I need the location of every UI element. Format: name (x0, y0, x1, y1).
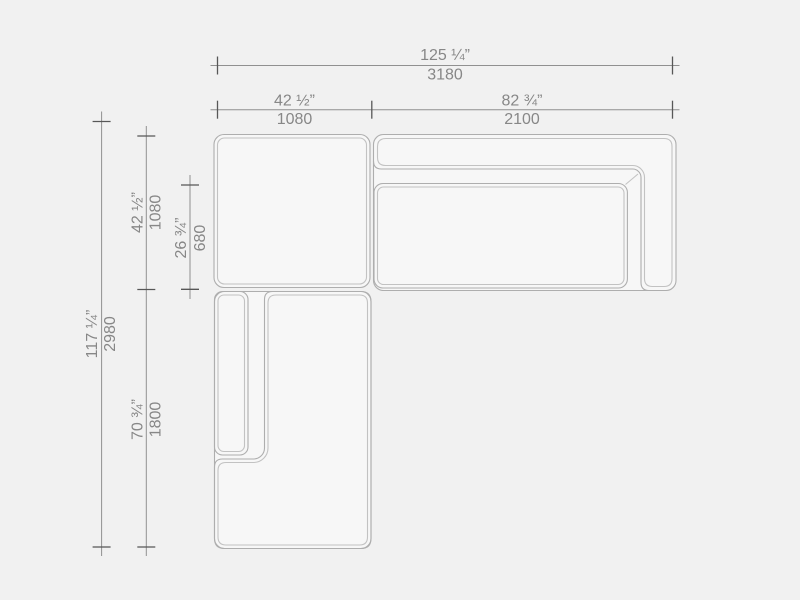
svg-text:2100: 2100 (504, 111, 540, 128)
svg-text:42 ½”: 42 ½” (130, 192, 147, 233)
svg-text:680: 680 (192, 225, 209, 252)
svg-text:125 ¼”: 125 ¼” (420, 47, 470, 64)
svg-text:117 ¼”: 117 ¼” (84, 310, 101, 359)
svg-text:1080: 1080 (147, 195, 164, 231)
svg-text:3180: 3180 (427, 67, 463, 84)
svg-text:82 ¾”: 82 ¾” (502, 93, 543, 110)
svg-text:1800: 1800 (147, 402, 164, 438)
svg-text:26 ¾”: 26 ¾” (173, 218, 190, 259)
svg-text:2980: 2980 (102, 316, 119, 352)
svg-text:70 ¾”: 70 ¾” (130, 399, 147, 440)
svg-text:1080: 1080 (277, 111, 313, 128)
svg-text:42 ½”: 42 ½” (274, 93, 315, 110)
